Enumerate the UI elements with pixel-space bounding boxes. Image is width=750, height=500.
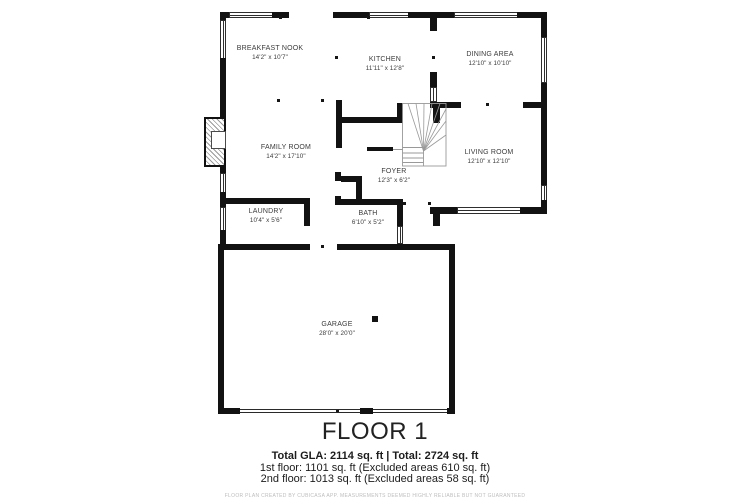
wall-segment <box>220 230 226 245</box>
garage-post <box>372 316 379 323</box>
stats-total: Total GLA: 2114 sq. ft | Total: 2724 sq.… <box>0 451 750 463</box>
wall-segment <box>223 198 311 204</box>
window <box>369 12 409 19</box>
disclaimer-text: FLOOR PLAN CREATED BY CUBICASA APP. MEAS… <box>0 493 750 499</box>
room-dimensions: 12'10" x 10'10" <box>468 60 511 67</box>
window <box>430 87 437 103</box>
wall-segment <box>541 12 547 38</box>
garage-door <box>373 409 447 413</box>
room-label-dining-area: DINING AREA 12'10" x 10'10" <box>466 51 513 68</box>
window <box>454 12 518 19</box>
floor-plan: BREAKFAST NOOK 14'2" x 10'7" KITCHEN 11'… <box>0 0 750 500</box>
wall-segment <box>447 408 455 415</box>
window <box>541 185 547 201</box>
wall-segment <box>397 205 403 227</box>
wall-segment <box>541 83 547 186</box>
room-dimensions: 14'2" x 17'10" <box>266 153 305 160</box>
footer-block: FLOOR 1 Total GLA: 2114 sq. ft | Total: … <box>0 419 750 499</box>
room-name: KITCHEN <box>369 56 401 63</box>
door-opening-tick <box>336 410 339 413</box>
wall-segment <box>220 58 226 118</box>
window <box>220 20 226 59</box>
floor-title: FLOOR 1 <box>0 419 750 445</box>
room-name: FOYER <box>381 168 406 175</box>
wall-segment <box>342 117 403 123</box>
room-label-breakfast-nook: BREAKFAST NOOK 14'2" x 10'7" <box>237 45 303 62</box>
wall-segment <box>335 199 403 205</box>
window <box>229 12 274 19</box>
room-name: GARAGE <box>321 321 352 328</box>
room-label-kitchen: KITCHEN 11'11" x 12'8" <box>366 56 405 73</box>
door-opening-tick <box>335 56 338 59</box>
wall-segment <box>218 244 310 251</box>
room-name: BATH <box>359 210 378 217</box>
wall-segment <box>218 408 240 415</box>
wall-segment <box>336 100 342 148</box>
door-opening-tick <box>432 56 435 59</box>
window <box>220 173 226 193</box>
room-label-laundry: LAUNDRY 10'4" x 5'6" <box>249 208 284 225</box>
door-opening-tick <box>321 99 324 102</box>
window <box>397 226 403 245</box>
room-dimensions: 10'4" x 5'6" <box>250 217 282 224</box>
door-opening-tick <box>367 16 370 19</box>
room-label-garage: GARAGE 28'0" x 20'0" <box>319 321 355 338</box>
room-label-foyer: FOYER 12'3" x 6'2" <box>378 168 410 185</box>
room-label-bath: BATH 6'10" x 5'2" <box>352 210 384 227</box>
room-dimensions: 11'11" x 12'8" <box>366 65 405 72</box>
garage-door <box>240 409 360 413</box>
wall-segment <box>430 12 437 31</box>
room-dimensions: 6'10" x 5'2" <box>352 219 384 226</box>
fireplace-firebox <box>211 131 226 149</box>
wall-segment <box>433 214 440 226</box>
room-label-family-room: FAMILY ROOM 14'2" x 17'10" <box>261 144 311 161</box>
wall-segment <box>520 207 547 214</box>
wall-segment <box>337 244 455 251</box>
room-name: LAUNDRY <box>249 208 284 215</box>
door-opening-tick <box>486 103 489 106</box>
half-wall <box>367 147 393 151</box>
door-opening-tick <box>279 16 282 19</box>
wall-segment <box>430 72 437 87</box>
window <box>457 207 521 214</box>
room-dimensions: 12'3" x 6'2" <box>378 177 410 184</box>
room-dimensions: 14'2" x 10'7" <box>252 54 288 61</box>
door-opening-tick <box>277 99 280 102</box>
room-name: LIVING ROOM <box>465 149 514 156</box>
staircase <box>402 103 447 167</box>
room-name: BREAKFAST NOOK <box>237 45 303 52</box>
wall-segment <box>449 250 455 408</box>
room-dimensions: 12'10" x 12'10" <box>467 158 510 165</box>
room-name: DINING AREA <box>466 51 513 58</box>
wall-segment <box>333 12 371 19</box>
door-opening-tick <box>403 202 406 205</box>
room-name: FAMILY ROOM <box>261 144 311 151</box>
wall-segment <box>360 408 373 415</box>
wall-segment <box>523 102 541 108</box>
wall-segment <box>218 250 224 410</box>
wall-segment <box>304 204 310 226</box>
stats-second-floor: 2nd floor: 1013 sq. ft (Excluded areas 5… <box>0 474 750 486</box>
room-dimensions: 28'0" x 20'0" <box>319 330 355 337</box>
room-label-living-room: LIVING ROOM 12'10" x 12'10" <box>465 149 514 166</box>
window <box>541 37 547 83</box>
door-opening-tick <box>428 202 431 205</box>
door-opening-tick <box>321 245 324 248</box>
closet-wall <box>356 182 362 199</box>
window <box>220 207 226 231</box>
